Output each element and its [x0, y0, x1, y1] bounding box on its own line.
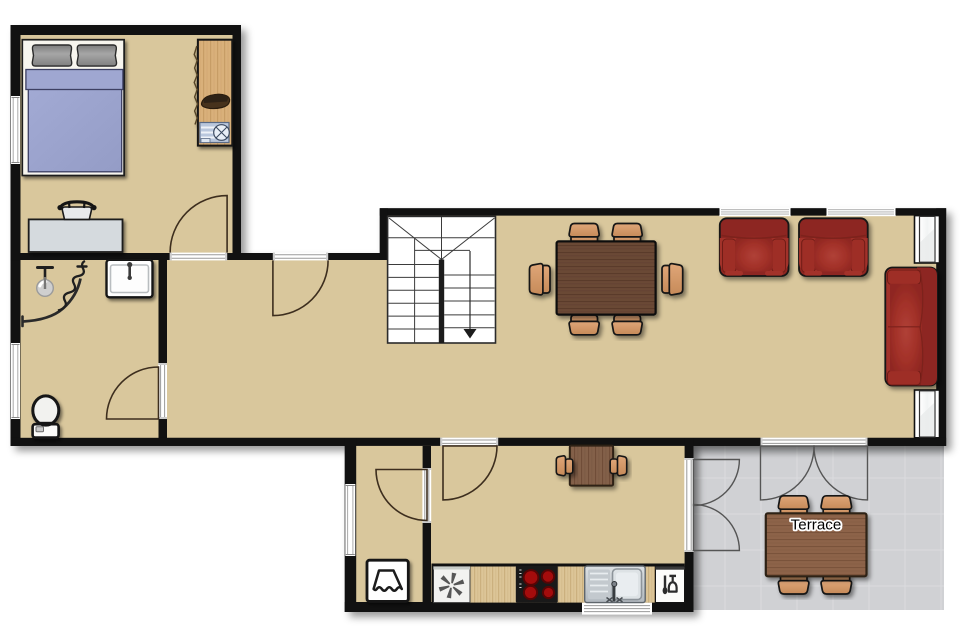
svg-text:Terrace: Terrace: [791, 517, 842, 534]
